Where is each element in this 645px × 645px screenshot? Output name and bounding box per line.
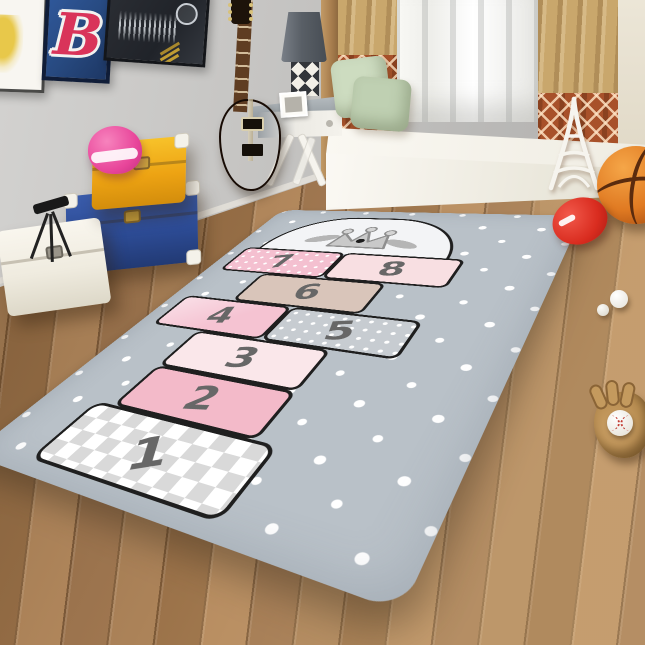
trunk-corner-cap [185, 180, 200, 197]
gold-sprig-icon [160, 48, 180, 62]
trunk-corner-cap [186, 249, 201, 266]
soundwave-lines-icon [118, 10, 178, 44]
white-ball-tiny [597, 304, 609, 316]
eiffel-tower-figurine [544, 96, 604, 192]
photo-frame [279, 91, 308, 118]
square-number: 4 [199, 305, 241, 327]
square-number: 6 [288, 281, 326, 303]
team-logo-letter: B [52, 5, 104, 65]
glove-finger [605, 379, 621, 406]
pillow-green-front [350, 76, 412, 133]
square-number: 8 [373, 259, 410, 279]
white-ball-small [610, 290, 628, 308]
trunk-lock [124, 209, 141, 224]
baseball [607, 410, 633, 436]
poster-abstract-art [0, 0, 48, 93]
curtain-tan-section [538, 0, 618, 93]
poster-soundwave-art [103, 0, 210, 67]
baseball-stitch-icon [607, 415, 620, 432]
storage-trunk-white [0, 217, 111, 317]
square-number: 7 [265, 252, 298, 271]
room-scene: B [0, 0, 645, 645]
guitar-headstock [231, 0, 251, 24]
square-number: 3 [218, 344, 266, 372]
poster-team-logo: B [42, 0, 115, 84]
square-number: 1 [120, 429, 174, 478]
square-number: 5 [319, 318, 359, 345]
vinyl-disc-icon [175, 2, 198, 25]
trunk-corner-cap [174, 132, 189, 148]
trunk-lock [45, 245, 64, 260]
baseball-stitch-icon [620, 415, 633, 432]
lamp-shade [281, 12, 327, 62]
drawer-knob [326, 120, 333, 127]
square-number: 2 [175, 383, 227, 416]
eiffel-tower-icon [544, 96, 604, 192]
